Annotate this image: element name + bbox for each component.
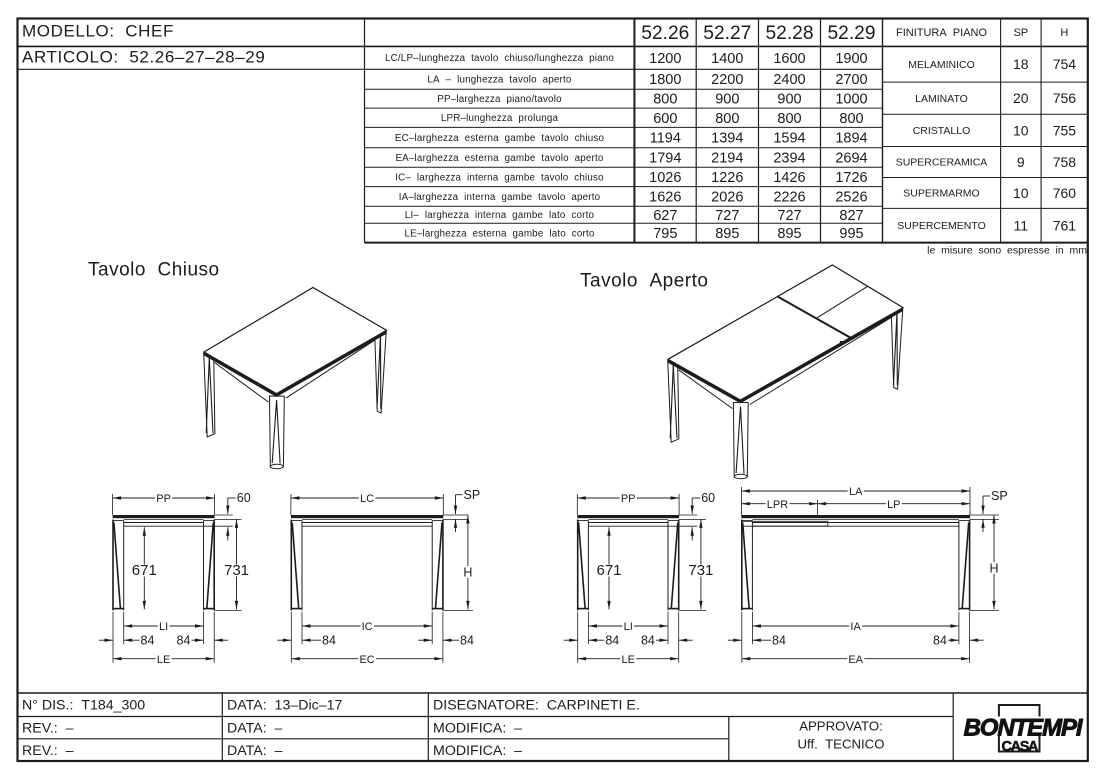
- svg-text:84: 84: [322, 633, 336, 647]
- svg-text:1026: 1026: [649, 170, 681, 186]
- svg-text:52.28: 52.28: [765, 23, 813, 44]
- svg-text:795: 795: [653, 226, 677, 242]
- svg-text:SP: SP: [464, 488, 481, 502]
- svg-text:758: 758: [1053, 154, 1077, 170]
- svg-text:2526: 2526: [835, 189, 867, 205]
- svg-text:MELAMINICO: MELAMINICO: [908, 59, 975, 71]
- svg-text:2200: 2200: [711, 72, 743, 88]
- svg-text:727: 727: [715, 208, 739, 224]
- svg-text:84: 84: [141, 633, 155, 647]
- svg-text:EA: EA: [848, 654, 863, 666]
- svg-text:800: 800: [777, 111, 801, 127]
- svg-text:2026: 2026: [711, 189, 743, 205]
- svg-text:H: H: [1060, 27, 1068, 39]
- svg-text:84: 84: [177, 633, 191, 647]
- svg-text:REV.: –: REV.: –: [22, 721, 74, 737]
- svg-text:1000: 1000: [835, 92, 867, 108]
- svg-text:20: 20: [1013, 90, 1029, 106]
- svg-text:SUPERCEMENTO: SUPERCEMENTO: [897, 220, 986, 232]
- svg-text:1894: 1894: [835, 131, 867, 147]
- svg-text:LI: LI: [159, 621, 168, 633]
- svg-text:2700: 2700: [835, 72, 867, 88]
- svg-text:LE: LE: [157, 654, 170, 666]
- svg-text:IC– larghezza interna gambe: IC– larghezza interna gambe tavolo chius…: [395, 172, 604, 183]
- svg-text:1900: 1900: [835, 51, 867, 67]
- svg-text:84: 84: [772, 633, 786, 647]
- svg-text:DATA: –: DATA: –: [227, 721, 283, 737]
- svg-text:EA–larghezza esterna gambe: EA–larghezza esterna gambe tavolo aperto: [395, 153, 603, 164]
- svg-text:Tavolo Chiuso: Tavolo Chiuso: [88, 259, 220, 280]
- svg-text:900: 900: [777, 92, 801, 108]
- svg-text:MODELLO: CHEF: MODELLO: CHEF: [22, 22, 174, 41]
- svg-text:827: 827: [839, 208, 863, 224]
- svg-text:2194: 2194: [711, 151, 743, 167]
- svg-text:1200: 1200: [649, 51, 681, 67]
- svg-text:1626: 1626: [649, 189, 681, 205]
- svg-text:DATA: 13–Dic–17: DATA: 13–Dic–17: [227, 698, 342, 714]
- svg-text:LP: LP: [887, 499, 900, 511]
- svg-text:84: 84: [605, 633, 619, 647]
- svg-text:LE–larghezza esterna gambe: LE–larghezza esterna gambe lato corto: [404, 228, 594, 239]
- svg-text:DISEGNATORE: CARPINETI E.: DISEGNATORE: CARPINETI E.: [433, 698, 640, 714]
- svg-text:CASA: CASA: [1002, 739, 1039, 755]
- svg-text:800: 800: [653, 92, 677, 108]
- svg-text:995: 995: [839, 226, 863, 242]
- svg-text:N° DIS.: T184_300: N° DIS.: T184_300: [22, 698, 145, 714]
- svg-text:EC–larghezza esterna gambe: EC–larghezza esterna gambe tavolo chiuso: [395, 133, 605, 144]
- svg-text:LA – lunghezza tavolo aper: LA – lunghezza tavolo aperto: [427, 75, 572, 86]
- svg-text:10: 10: [1013, 185, 1029, 201]
- svg-text:671: 671: [596, 562, 621, 579]
- svg-text:1394: 1394: [711, 131, 743, 147]
- svg-text:LC: LC: [360, 493, 374, 505]
- svg-text:731: 731: [688, 562, 713, 579]
- svg-text:1794: 1794: [649, 151, 681, 167]
- svg-text:LI– larghezza interna gambe: LI– larghezza interna gambe lato corto: [405, 210, 595, 221]
- svg-text:Tavolo Aperto: Tavolo Aperto: [580, 271, 708, 292]
- svg-text:52.26: 52.26: [641, 23, 689, 44]
- svg-text:LPR: LPR: [767, 499, 788, 511]
- svg-text:SUPERCERAMICA: SUPERCERAMICA: [896, 157, 988, 169]
- svg-text:MODIFICA: –: MODIFICA: –: [433, 721, 522, 737]
- svg-text:756: 756: [1053, 90, 1077, 106]
- svg-text:SUPERMARMO: SUPERMARMO: [903, 188, 979, 200]
- svg-text:84: 84: [933, 633, 947, 647]
- svg-text:60: 60: [237, 491, 251, 505]
- svg-text:52.27: 52.27: [703, 23, 751, 44]
- svg-text:18: 18: [1013, 56, 1029, 72]
- svg-text:1194: 1194: [650, 131, 681, 147]
- svg-text:ARTICOLO: 52.26–27–28–29: ARTICOLO: 52.26–27–28–29: [22, 48, 265, 67]
- svg-text:H: H: [463, 566, 472, 580]
- svg-text:755: 755: [1053, 122, 1077, 138]
- svg-text:895: 895: [715, 226, 739, 242]
- svg-text:2226: 2226: [773, 189, 805, 205]
- svg-text:727: 727: [777, 208, 801, 224]
- svg-text:LAMINATO: LAMINATO: [915, 93, 968, 105]
- svg-text:2400: 2400: [773, 72, 805, 88]
- svg-text:PP–larghezza piano/tavolo: PP–larghezza piano/tavolo: [437, 94, 562, 105]
- svg-text:760: 760: [1053, 185, 1077, 201]
- svg-text:671: 671: [132, 562, 157, 579]
- svg-text:1726: 1726: [835, 170, 867, 186]
- svg-text:LPR–lunghezza prolunga: LPR–lunghezza prolunga: [441, 113, 559, 124]
- svg-text:895: 895: [777, 226, 801, 242]
- svg-text:10: 10: [1013, 122, 1029, 138]
- svg-text:60: 60: [701, 491, 715, 505]
- svg-text:52.29: 52.29: [827, 23, 875, 44]
- svg-text:IA–larghezza interna gambe: IA–larghezza interna gambe tavolo aperto: [399, 192, 601, 203]
- svg-text:le misure sono espresse in: le misure sono espresse in mm: [927, 245, 1087, 257]
- svg-text:2394: 2394: [773, 151, 805, 167]
- svg-text:1400: 1400: [711, 51, 743, 67]
- svg-text:DATA: –: DATA: –: [227, 743, 283, 759]
- svg-text:CRISTALLO: CRISTALLO: [913, 125, 971, 137]
- svg-text:1594: 1594: [773, 131, 805, 147]
- svg-text:1226: 1226: [711, 170, 743, 186]
- svg-text:9: 9: [1017, 154, 1025, 170]
- svg-text:H: H: [989, 562, 998, 576]
- svg-text:754: 754: [1053, 56, 1077, 72]
- svg-text:627: 627: [653, 208, 677, 224]
- svg-text:LC/LP–lunghezza tavolo chius: LC/LP–lunghezza tavolo chiuso/lunghezza …: [385, 53, 614, 64]
- svg-text:84: 84: [641, 633, 655, 647]
- svg-text:MODIFICA: –: MODIFICA: –: [433, 743, 522, 759]
- svg-text:LI: LI: [624, 621, 633, 633]
- svg-text:900: 900: [715, 92, 739, 108]
- svg-text:731: 731: [224, 562, 249, 579]
- svg-text:SP: SP: [1013, 27, 1028, 39]
- svg-text:SP: SP: [991, 489, 1008, 503]
- svg-text:IC: IC: [362, 621, 373, 633]
- svg-text:BONTEMPI: BONTEMPI: [964, 715, 1084, 742]
- svg-text:REV.: –: REV.: –: [22, 743, 74, 759]
- svg-text:FINITURA PIANO: FINITURA PIANO: [896, 27, 988, 39]
- svg-text:LA: LA: [849, 486, 863, 498]
- svg-text:PP: PP: [621, 493, 636, 505]
- svg-text:PP: PP: [156, 493, 171, 505]
- svg-text:800: 800: [715, 111, 739, 127]
- svg-text:EC: EC: [359, 654, 374, 666]
- svg-text:11: 11: [1014, 218, 1029, 234]
- svg-text:800: 800: [839, 111, 863, 127]
- svg-text:600: 600: [653, 111, 677, 127]
- svg-text:1600: 1600: [773, 51, 805, 67]
- svg-text:761: 761: [1053, 218, 1077, 234]
- svg-text:Uff. TECNICO: Uff. TECNICO: [798, 737, 885, 752]
- svg-text:2694: 2694: [835, 151, 867, 167]
- svg-text:84: 84: [460, 633, 474, 647]
- svg-text:IA: IA: [850, 621, 861, 633]
- svg-text:APPROVATO:: APPROVATO:: [799, 719, 883, 734]
- svg-text:1800: 1800: [649, 72, 681, 88]
- svg-text:LE: LE: [621, 654, 634, 666]
- svg-text:1426: 1426: [773, 170, 805, 186]
